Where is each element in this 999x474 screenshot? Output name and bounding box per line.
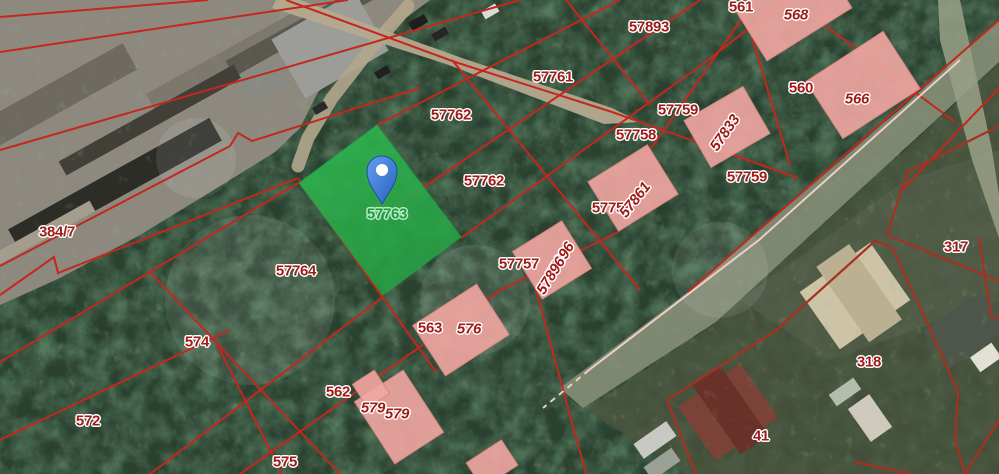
satellite-map bbox=[0, 0, 999, 474]
map-canvas[interactable]: 5789356156857761560566577625775957758578… bbox=[0, 0, 999, 474]
